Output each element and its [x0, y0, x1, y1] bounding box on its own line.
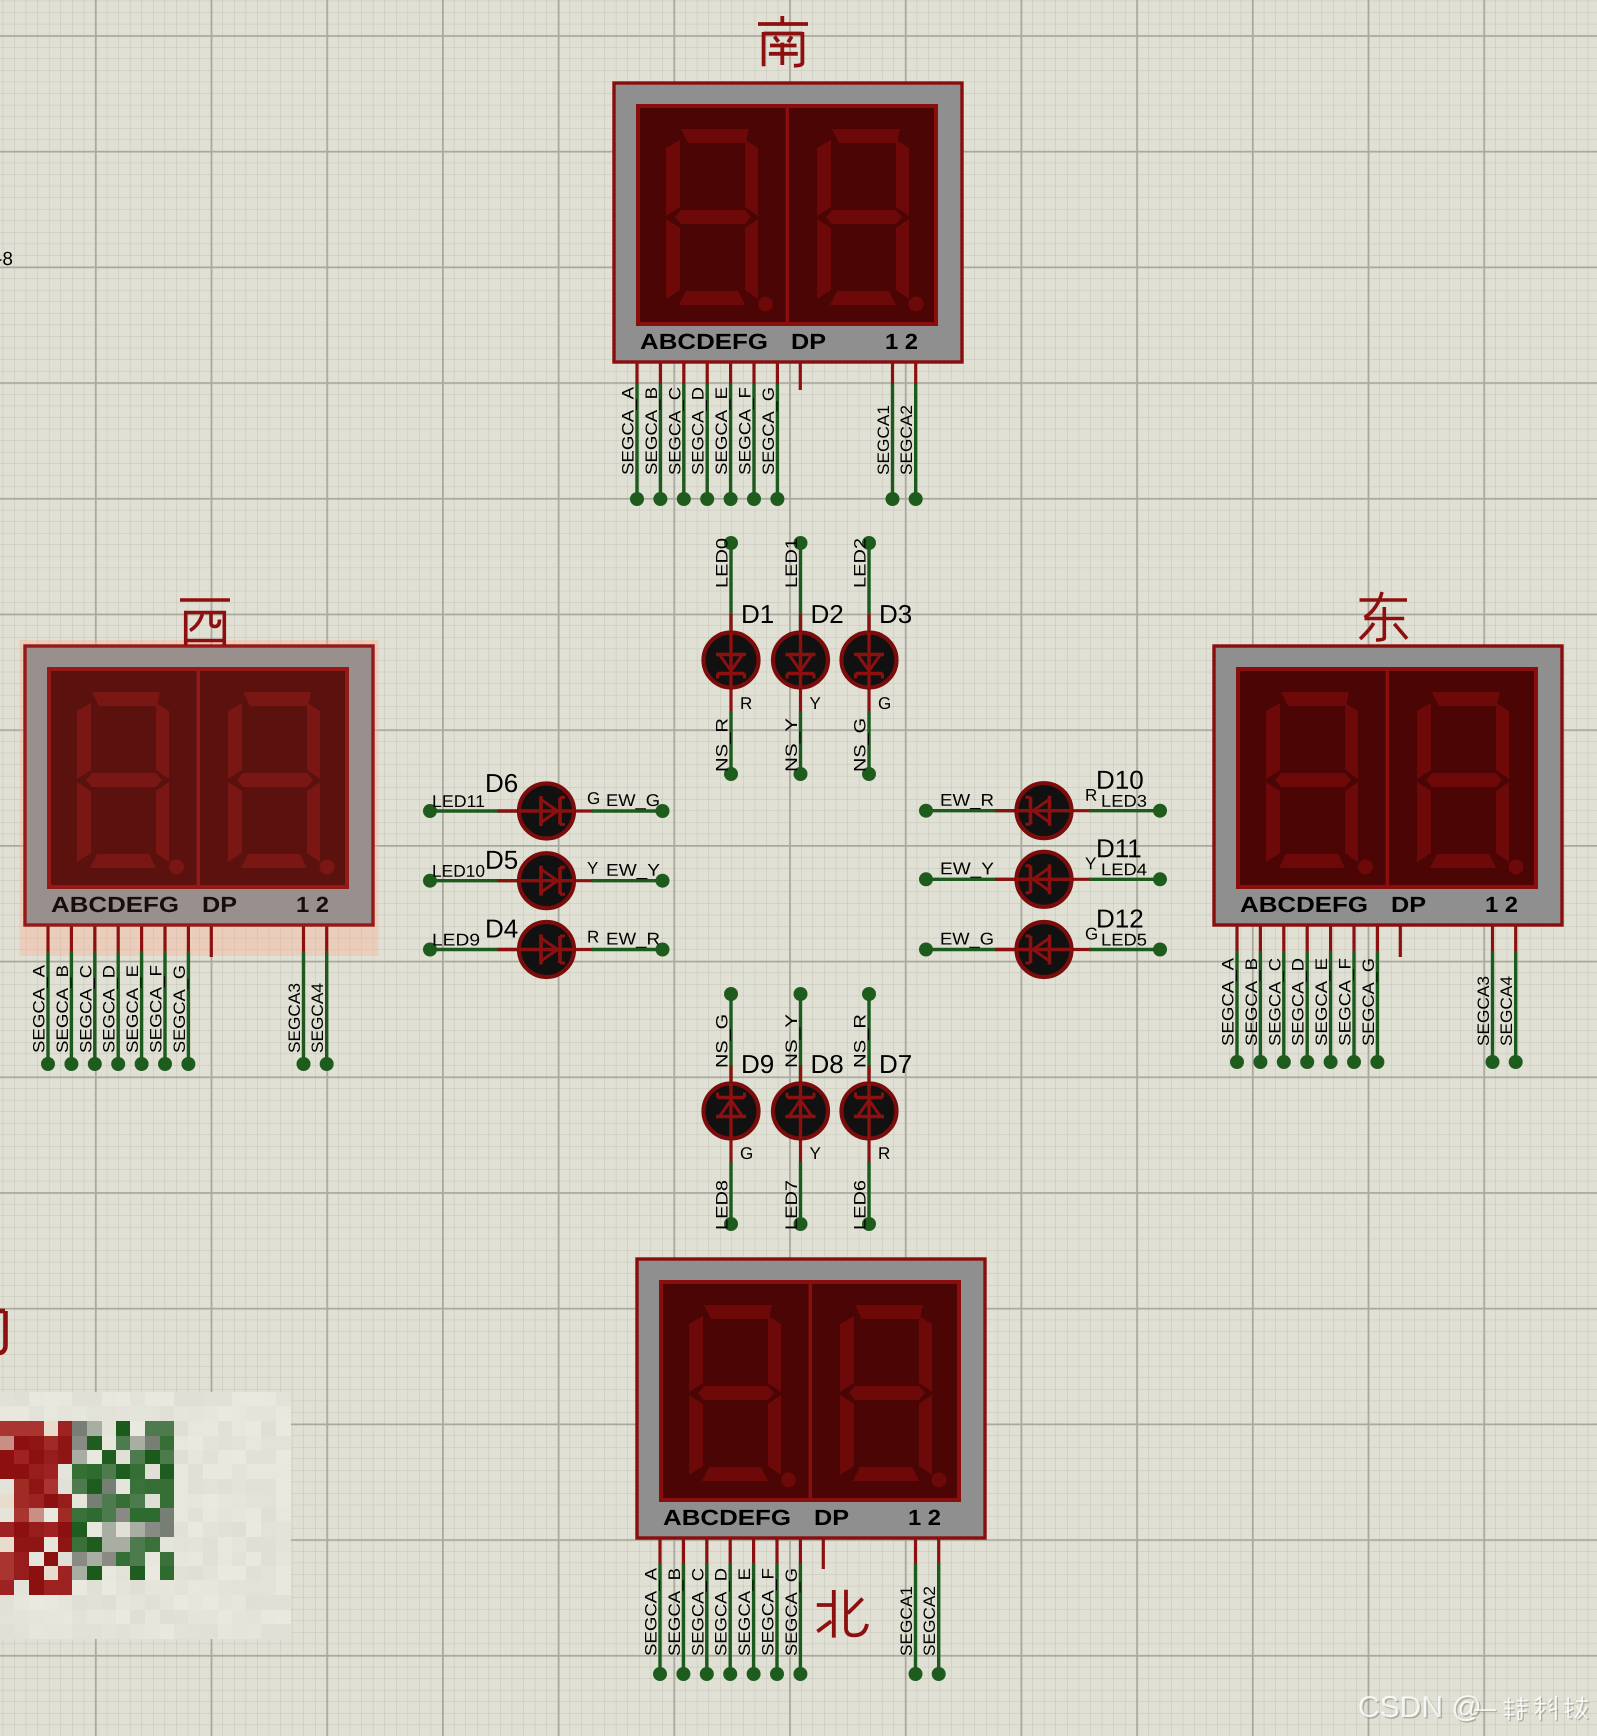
svg-text:R: R	[878, 1144, 890, 1163]
svg-text:DP: DP	[1391, 892, 1426, 917]
svg-text:SEGCA1: SEGCA1	[874, 405, 893, 475]
svg-text:SEGCA_C: SEGCA_C	[1265, 958, 1284, 1046]
svg-text:NS_R: NS_R	[851, 1014, 870, 1068]
svg-text:LED2: LED2	[851, 538, 870, 588]
svg-text:SEGCA_G: SEGCA_G	[1359, 958, 1378, 1046]
svg-text:SEGCA_B: SEGCA_B	[642, 387, 661, 475]
svg-text:Y: Y	[809, 1144, 820, 1163]
svg-text:D4: D4	[485, 914, 518, 944]
svg-text:EW_G: EW_G	[940, 930, 994, 949]
svg-text:SEGCA_G: SEGCA_G	[759, 387, 778, 475]
svg-text:LED3: LED3	[1101, 792, 1147, 811]
svg-text:Y: Y	[587, 859, 598, 878]
svg-text:LED8: LED8	[713, 1180, 732, 1230]
svg-text:EW_Y: EW_Y	[606, 861, 660, 880]
svg-text:SEGCA2: SEGCA2	[920, 1586, 939, 1656]
svg-text:SEGCA_D: SEGCA_D	[100, 965, 119, 1053]
svg-text:NS_Y: NS_Y	[782, 718, 801, 772]
svg-text:D5: D5	[485, 845, 518, 875]
svg-text:NS_G: NS_G	[851, 718, 870, 772]
svg-text:SEGCA_A: SEGCA_A	[642, 1567, 661, 1656]
svg-text:LED11: LED11	[432, 792, 485, 811]
svg-text:D11: D11	[1096, 833, 1142, 863]
svg-text:SEGCA_E: SEGCA_E	[712, 387, 731, 475]
svg-text:SEGCA4: SEGCA4	[1497, 976, 1516, 1046]
svg-text:EW_R: EW_R	[940, 791, 994, 810]
svg-text:LED4: LED4	[1101, 860, 1147, 879]
svg-text:LED0: LED0	[713, 538, 732, 588]
svg-text:ABCDEFG: ABCDEFG	[1240, 892, 1368, 917]
svg-text:EW_G: EW_G	[606, 791, 660, 810]
svg-text:DP: DP	[791, 329, 826, 354]
svg-text:R: R	[740, 694, 752, 713]
svg-text:LED9: LED9	[432, 931, 480, 950]
svg-text:SEGCA_A: SEGCA_A	[30, 964, 49, 1053]
svg-text:SEGCA_D: SEGCA_D	[1289, 958, 1308, 1046]
svg-text:-8: -8	[0, 249, 13, 270]
svg-text:1 2: 1 2	[885, 329, 918, 354]
svg-text:SEGCA_B: SEGCA_B	[665, 1568, 684, 1656]
svg-text:LED5: LED5	[1101, 931, 1147, 950]
svg-text:D10: D10	[1096, 765, 1144, 795]
svg-text:NS_Y: NS_Y	[782, 1014, 801, 1068]
svg-text:SEGCA_C: SEGCA_C	[688, 1568, 707, 1656]
svg-text:LED6: LED6	[851, 1180, 870, 1230]
svg-text:G: G	[878, 694, 891, 713]
svg-text:SEGCA_F: SEGCA_F	[1336, 958, 1355, 1046]
svg-text:D6: D6	[485, 768, 518, 798]
svg-text:D3: D3	[879, 599, 912, 629]
svg-text:SEGCA_F: SEGCA_F	[147, 965, 166, 1053]
svg-text:SEGCA2: SEGCA2	[897, 405, 916, 475]
svg-text:1 2: 1 2	[908, 1505, 941, 1530]
svg-text:SEGCA_E: SEGCA_E	[735, 1568, 754, 1656]
svg-text:LED1: LED1	[782, 538, 801, 588]
svg-text:SEGCA_G: SEGCA_G	[782, 1568, 801, 1656]
svg-text:D7: D7	[879, 1049, 912, 1079]
svg-text:Y: Y	[809, 694, 820, 713]
svg-text:1 2: 1 2	[1485, 892, 1518, 917]
svg-text:SEGCA3: SEGCA3	[285, 983, 304, 1053]
svg-text:SEGCA_F: SEGCA_F	[736, 387, 755, 475]
svg-text:SEGCA3: SEGCA3	[1474, 976, 1493, 1046]
svg-text:DP: DP	[814, 1505, 849, 1530]
svg-text:SEGCA4: SEGCA4	[308, 983, 327, 1053]
svg-text:SEGCA_D: SEGCA_D	[689, 387, 708, 475]
svg-text:D1: D1	[741, 599, 774, 629]
svg-text:D9: D9	[741, 1049, 774, 1079]
svg-text:NS_R: NS_R	[713, 718, 732, 772]
svg-text:EW_Y: EW_Y	[940, 859, 994, 878]
svg-text:SEGCA_C: SEGCA_C	[665, 387, 684, 475]
svg-text:CSDN @: CSDN @	[1358, 1691, 1482, 1724]
svg-text:SEGCA_G: SEGCA_G	[170, 965, 189, 1053]
svg-text:SEGCA_B: SEGCA_B	[1242, 958, 1261, 1046]
svg-text:NS_G: NS_G	[713, 1014, 732, 1068]
svg-text:SEGCA_E: SEGCA_E	[1312, 958, 1331, 1046]
svg-text:SEGCA_A: SEGCA_A	[1219, 957, 1238, 1046]
svg-text:EW_R: EW_R	[606, 930, 660, 949]
svg-text:G: G	[740, 1144, 753, 1163]
svg-text:SEGCA1: SEGCA1	[897, 1586, 916, 1656]
svg-text:R: R	[587, 928, 599, 947]
svg-text:G: G	[587, 789, 600, 808]
svg-text:SEGCA_F: SEGCA_F	[759, 1568, 778, 1656]
svg-text:D12: D12	[1096, 904, 1144, 934]
svg-text:LED7: LED7	[782, 1180, 801, 1230]
svg-text:SEGCA_D: SEGCA_D	[712, 1568, 731, 1656]
svg-text:SEGCA_E: SEGCA_E	[123, 965, 142, 1053]
svg-text:D8: D8	[810, 1049, 843, 1079]
svg-text:D2: D2	[810, 599, 843, 629]
svg-text:SEGCA_A: SEGCA_A	[619, 386, 638, 475]
svg-text:LED10: LED10	[432, 862, 485, 881]
svg-text:SEGCA_B: SEGCA_B	[53, 965, 72, 1053]
svg-text:SEGCA_C: SEGCA_C	[76, 965, 95, 1053]
svg-text:ABCDEFG: ABCDEFG	[640, 329, 768, 354]
svg-text:ABCDEFG: ABCDEFG	[663, 1505, 791, 1530]
svg-text:Y: Y	[1085, 854, 1096, 873]
